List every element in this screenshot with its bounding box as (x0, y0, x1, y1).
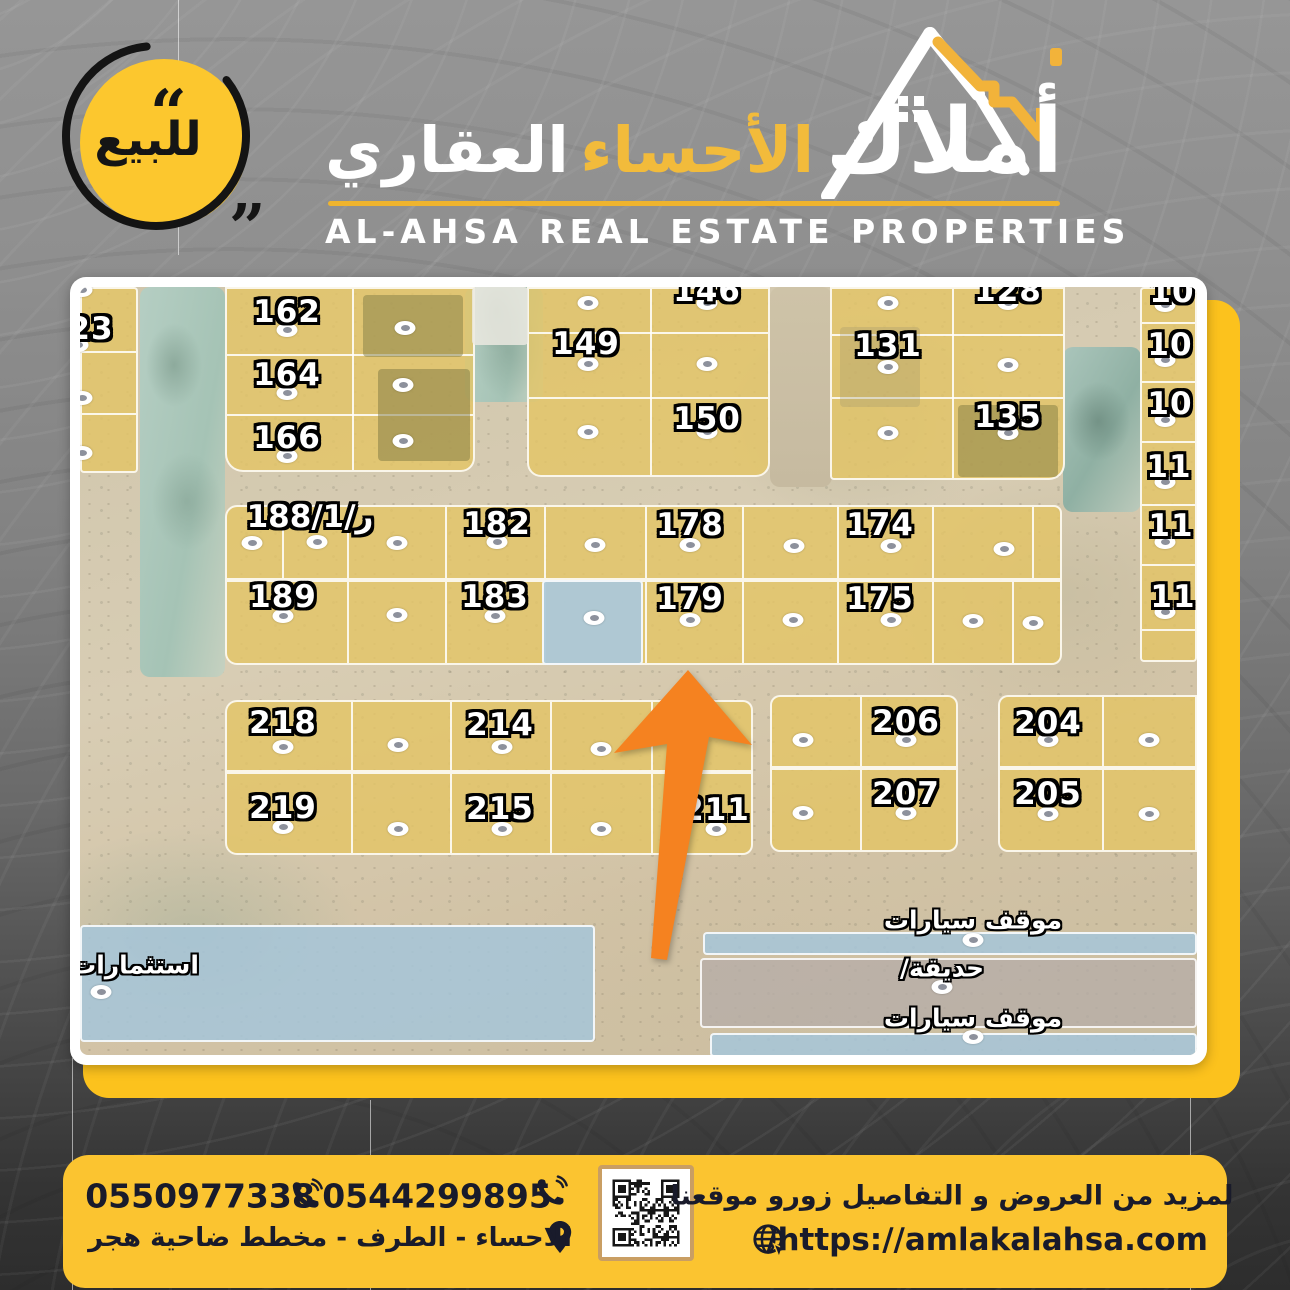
plot-number: ر/188/1 (247, 499, 374, 535)
address-text: الاحساء - الطرف - مخطط ضاحية هجر (88, 1223, 572, 1253)
plot-divider (1102, 697, 1104, 766)
plot-marker-dot (273, 740, 294, 754)
plot-marker-dot (784, 539, 805, 553)
plot-marker-dot (697, 357, 718, 371)
plot-block (225, 580, 1062, 665)
plot-marker-dot (584, 611, 605, 625)
plot-marker-dot (1139, 733, 1160, 747)
plot-divider (837, 507, 839, 578)
plot-number: 189 (249, 579, 317, 615)
plot-divider (351, 702, 353, 770)
plot-marker-core (498, 744, 507, 750)
plot-marker-core (884, 430, 893, 436)
plot-divider (650, 289, 652, 475)
plot-number: 131 (854, 328, 922, 364)
plot-marker-core (1145, 737, 1154, 743)
plot-marker-core (597, 826, 606, 832)
plot-marker-dot (591, 822, 612, 836)
plot-divider (952, 289, 954, 478)
plot-marker-core (590, 615, 599, 621)
for-sale-badge: “ للبيع „ (58, 36, 264, 246)
badge-label: للبيع (86, 112, 210, 167)
plot-marker-dot (1023, 616, 1044, 630)
plot-marker-core (938, 984, 947, 990)
plot-number: 10 (1149, 287, 1194, 310)
plot-number: 219 (249, 790, 317, 826)
plot-marker-dot (783, 613, 804, 627)
logo-underline (328, 201, 1060, 206)
plot-divider (1142, 504, 1195, 506)
plot-marker-core (1000, 546, 1009, 552)
plot-divider (837, 582, 839, 663)
plot-divider (82, 413, 136, 415)
plot-marker-dot (242, 536, 263, 550)
website-url: /https://amlakalahsa.com (766, 1222, 1208, 1258)
plot-marker-dot (793, 806, 814, 820)
plot-marker-dot (994, 542, 1015, 556)
plot-marker-core (584, 300, 593, 306)
plot-divider (651, 702, 653, 770)
plot-marker-core (1029, 620, 1038, 626)
map-road (1063, 347, 1141, 512)
plot-number: 128 (974, 287, 1042, 309)
plot-divider (352, 289, 354, 470)
plot-marker-dot (387, 536, 408, 550)
plot-number: 164 (253, 357, 321, 393)
plot-marker-core (584, 429, 593, 435)
plot-divider (450, 702, 452, 770)
plot-marker-dot (585, 538, 606, 552)
plot-number: 183 (461, 579, 529, 615)
phone-icon (534, 1175, 568, 1209)
plot-marker-core (248, 540, 257, 546)
map-road (770, 287, 832, 487)
plot-marker-core (393, 540, 402, 546)
plot-marker-dot (91, 985, 112, 999)
plot-marker-core (884, 300, 893, 306)
plot-number: 178 (656, 507, 724, 543)
plot-divider (742, 507, 744, 578)
plot-number: 182 (463, 506, 531, 542)
plot-divider (742, 582, 744, 663)
plot-marker-core (1004, 362, 1013, 368)
map-area-label: موقف سيارات (884, 906, 1062, 935)
plot-number: 11 (1150, 579, 1195, 615)
qr-code (598, 1165, 694, 1261)
plot-divider (445, 582, 447, 663)
plot-number: 205 (1014, 776, 1082, 812)
plot-divider (932, 507, 934, 578)
plot-marker-core (80, 395, 87, 401)
plot-number: 215 (466, 791, 534, 827)
plot-divider (651, 774, 653, 853)
plot-marker-core (969, 1034, 978, 1040)
logo-english-title: AL-AHSA REAL ESTATE PROPERTIES (325, 212, 1063, 251)
plot-marker-core (887, 617, 896, 623)
plot-divider (550, 774, 552, 853)
plot-marker-core (279, 744, 288, 750)
plot-marker-core (887, 543, 896, 549)
logo-word-alaqari: العقاري (325, 114, 569, 187)
map-area-label: استثمارات (80, 951, 199, 980)
phone-icon (289, 1178, 323, 1212)
plot-divider (645, 507, 647, 578)
map-area-label: موقف سيارات (884, 1004, 1062, 1033)
plot-marker-core (399, 382, 408, 388)
plot-divider (645, 582, 647, 663)
plot-marker-core (393, 612, 402, 618)
plot-number: 214 (466, 707, 534, 743)
plot-marker-core (969, 618, 978, 624)
plot-marker-dot (963, 933, 984, 947)
plot-divider (932, 582, 934, 663)
plot-marker-dot (388, 822, 409, 836)
plot-marker-core (394, 742, 403, 748)
plot-marker-dot (578, 296, 599, 310)
plot-number: 211 (682, 792, 750, 828)
plot-marker-core (686, 617, 695, 623)
plot-divider (351, 774, 353, 853)
plot-marker-core (399, 438, 408, 444)
map-inner: 2316216416614614915012813113510101011111… (80, 287, 1197, 1055)
phone-number-2: 0544299895 (322, 1177, 552, 1216)
plot-divider (445, 507, 447, 578)
plot-number: 146 (673, 287, 741, 309)
plot-marker-dot (591, 742, 612, 756)
plot-marker-core (1145, 811, 1154, 817)
plot-divider (550, 702, 552, 770)
plot-marker-core (394, 826, 403, 832)
plot-marker-core (969, 937, 978, 943)
plot-number: 10 (1147, 327, 1192, 363)
plot-marker-dot (1139, 807, 1160, 821)
plot-marker-core (597, 746, 606, 752)
logo-word-alahsa: الأحساء (580, 114, 814, 187)
plot-number: 150 (673, 401, 741, 437)
plot-number: 11 (1146, 449, 1191, 485)
plot-marker-dot (393, 378, 414, 392)
plot-marker-dot (793, 733, 814, 747)
plot-number: 174 (846, 507, 914, 543)
plot-number: 149 (552, 326, 620, 362)
plot-marker-dot (963, 614, 984, 628)
plot-block (527, 287, 770, 477)
plot-divider (529, 397, 768, 399)
map-zone (703, 932, 1197, 955)
plot-marker-dot (393, 434, 414, 448)
plot-number: 23 (80, 311, 114, 347)
map-zone (80, 925, 595, 1042)
plot-marker-dot (878, 426, 899, 440)
plot-marker-core (97, 989, 106, 995)
plot-marker-core (884, 364, 893, 370)
promo-text: لمزيد من العروض و التفاصيل زورو موقعنا (670, 1181, 1233, 1212)
plot-number: 206 (872, 704, 940, 740)
plot-marker-dot (578, 425, 599, 439)
plot-divider (1142, 629, 1195, 631)
map-frame: 2316216416614614915012813113510101011111… (70, 277, 1207, 1065)
plot-divider (1142, 381, 1195, 383)
plot-number: 175 (846, 581, 914, 617)
plot-number: 204 (1014, 705, 1082, 741)
plot-number: 218 (249, 705, 317, 741)
plot-marker-core (591, 542, 600, 548)
plot-marker-core (789, 617, 798, 623)
plot-number: 179 (656, 581, 724, 617)
plot-marker-core (313, 539, 322, 545)
plot-divider (82, 351, 136, 353)
map-area-label: حديقة/ (900, 954, 984, 983)
logo-word-amlak: أملاك (826, 88, 1063, 196)
plot-marker-dot (307, 535, 328, 549)
plot-marker-core (401, 325, 410, 331)
plot-divider (1142, 564, 1195, 566)
plot-marker-dot (998, 358, 1019, 372)
plot-marker-core (80, 450, 87, 456)
plot-marker-core (790, 543, 799, 549)
plot-marker-core (799, 810, 808, 816)
plot-marker-core (80, 287, 87, 293)
plot-marker-core (799, 737, 808, 743)
map-road (140, 287, 225, 677)
plot-number: 162 (253, 294, 321, 330)
plot-number: 166 (253, 420, 321, 456)
plot-divider (1142, 441, 1195, 443)
plot-divider (1142, 322, 1195, 324)
plot-divider (544, 507, 546, 578)
plot-marker-dot (387, 608, 408, 622)
plot-marker-dot (395, 321, 416, 335)
plot-divider (860, 697, 862, 766)
footer-card: 0550977338 0544299895 الاحساء - الطرف - … (63, 1155, 1227, 1288)
plot-divider (860, 770, 862, 850)
poster: “ للبيع „ أملاك الأحساء العقاري AL-AHSA … (0, 0, 1290, 1290)
plot-divider (1012, 582, 1014, 663)
plot-divider (1032, 507, 1034, 578)
plot-divider (1102, 770, 1104, 850)
plot-marker-core (703, 361, 712, 367)
plot-marker-dot (878, 296, 899, 310)
map-zone (710, 1033, 1197, 1055)
plot-number: 11 (1148, 508, 1193, 544)
plot-marker-dot (388, 738, 409, 752)
plot-number: 207 (872, 776, 940, 812)
logo-arabic-title: أملاك الأحساء العقاري (325, 88, 1063, 213)
plot-number: 135 (974, 399, 1042, 435)
phone-number-1: 0550977338 (85, 1177, 315, 1216)
building-footprint (472, 287, 528, 345)
quote-close-icon: „ (230, 154, 267, 229)
plot-divider (450, 774, 452, 853)
plot-number: 10 (1147, 386, 1192, 422)
plot-divider (347, 582, 349, 663)
